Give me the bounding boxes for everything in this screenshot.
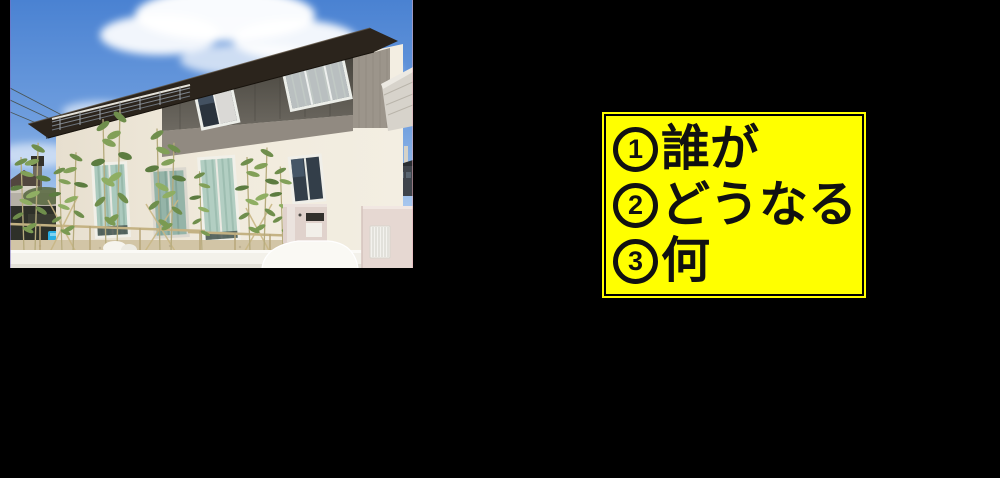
canvas: 1 誰が 2 どうなる 3 何: [0, 0, 1000, 478]
note-line: 3 何: [613, 233, 858, 289]
annotation-note: 1 誰が 2 どうなる 3 何: [604, 114, 864, 296]
mailbox: [306, 213, 324, 221]
note-line: 2 どうなる: [613, 177, 858, 233]
side-wall: [362, 206, 413, 268]
note-line-label: 何: [661, 237, 710, 286]
house-photo-illustration: [10, 0, 413, 268]
note-line: 1 誰が: [613, 121, 858, 177]
circled-number: 1: [613, 127, 658, 172]
circled-number: 3: [613, 239, 658, 284]
note-line-label: 誰が: [661, 125, 759, 174]
house-photo: [10, 0, 413, 268]
note-line-label: どうなる: [661, 181, 857, 230]
circled-number: 2: [613, 183, 658, 228]
gate-pillar: [283, 204, 327, 244]
window-1f-d: [288, 153, 327, 204]
